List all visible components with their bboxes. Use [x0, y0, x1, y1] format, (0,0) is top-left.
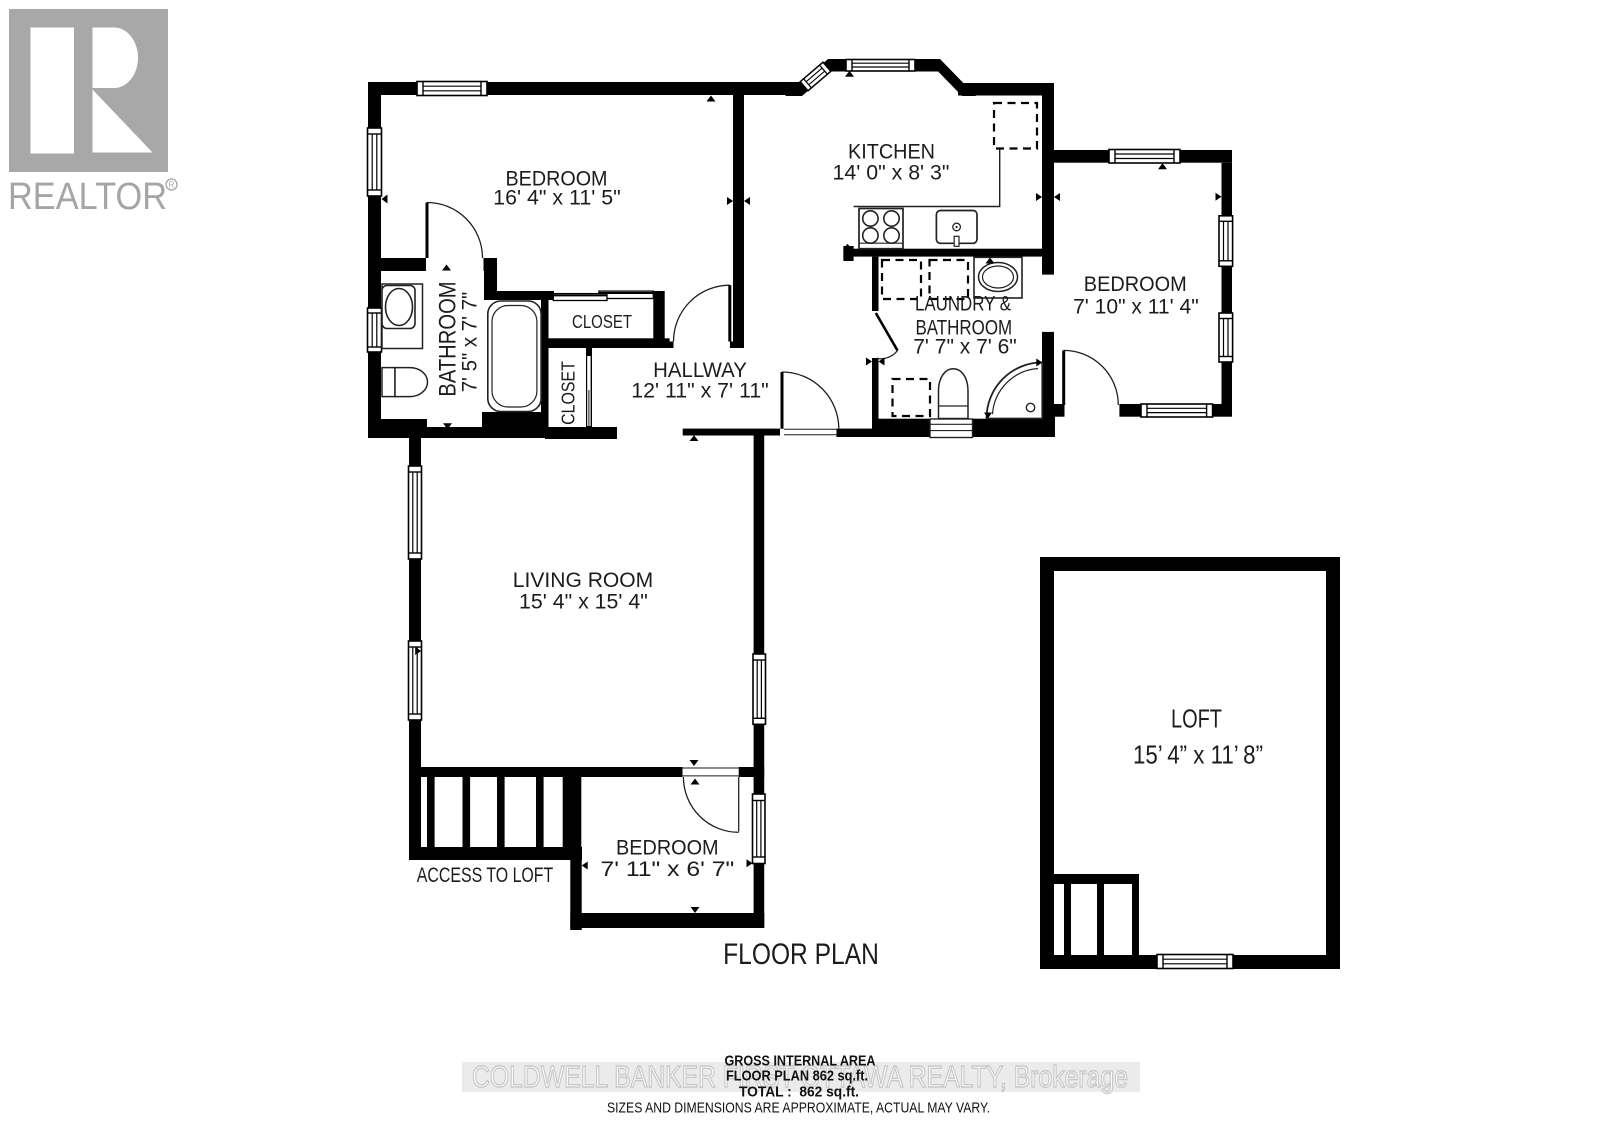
svg-text:LOFT: LOFT: [1171, 704, 1222, 734]
svg-text:12' 11" x 7' 11": 12' 11" x 7' 11": [631, 379, 769, 402]
svg-text:7' 5" x 7' 7": 7' 5" x 7' 7": [459, 292, 482, 393]
svg-text:LAUNDRY &: LAUNDRY &: [915, 293, 1011, 316]
svg-text:BEDROOM: BEDROOM: [616, 837, 719, 860]
svg-text:15' 4" x 15' 4": 15' 4" x 15' 4": [519, 591, 648, 614]
svg-text:FLOOR PLAN 862 sq.ft.: FLOOR PLAN 862 sq.ft.: [726, 1067, 868, 1084]
svg-text:7' 7" x 7' 6": 7' 7" x 7' 6": [913, 335, 1017, 358]
svg-text:BATHROOM: BATHROOM: [435, 281, 462, 396]
svg-text:7' 10" x 11' 4": 7' 10" x 11' 4": [1073, 296, 1199, 319]
svg-text:LIVING ROOM: LIVING ROOM: [513, 569, 654, 592]
svg-text:TOTAL : 862 sq.ft.: TOTAL : 862 sq.ft.: [739, 1083, 859, 1100]
svg-text:ACCESS TO LOFT: ACCESS TO LOFT: [417, 864, 554, 887]
svg-text:FLOOR PLAN: FLOOR PLAN: [723, 938, 879, 971]
svg-text:BEDROOM: BEDROOM: [1084, 273, 1187, 296]
svg-text:REALTOR: REALTOR: [8, 176, 167, 218]
svg-text:SIZES AND DIMENSIONS ARE APPRO: SIZES AND DIMENSIONS ARE APPROXIMATE, AC…: [607, 1099, 990, 1116]
svg-text:R: R: [169, 181, 175, 190]
svg-text:CLOSET: CLOSET: [558, 361, 578, 425]
svg-text:14' 0" x 8' 3": 14' 0" x 8' 3": [833, 161, 950, 184]
svg-text:15’ 4” x 11’ 8”: 15’ 4” x 11’ 8”: [1133, 740, 1263, 770]
svg-text:16' 4" x 11' 5": 16' 4" x 11' 5": [493, 187, 621, 210]
svg-text:KITCHEN: KITCHEN: [848, 140, 935, 163]
svg-text:7' 11" x 6' 7": 7' 11" x 6' 7": [601, 858, 735, 881]
svg-text:CLOSET: CLOSET: [572, 312, 632, 332]
